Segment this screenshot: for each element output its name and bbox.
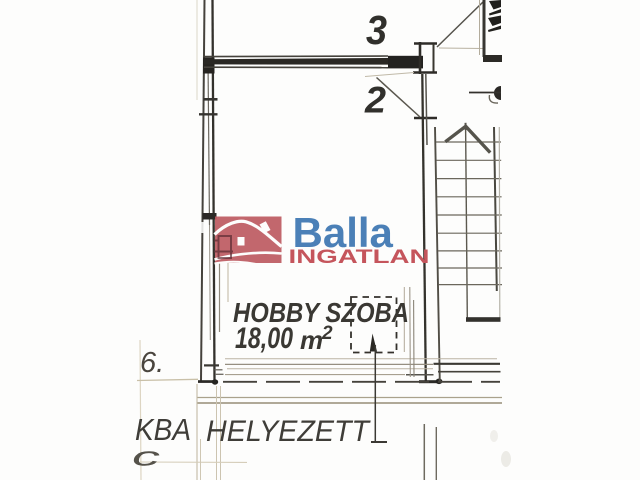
svg-text:m: m <box>300 325 323 355</box>
svg-text:HELYEZETT: HELYEZETT <box>206 415 372 448</box>
svg-text:3: 3 <box>366 7 387 53</box>
svg-text:6.: 6. <box>140 347 164 379</box>
svg-text:c: c <box>132 442 160 472</box>
svg-text:2: 2 <box>364 80 386 121</box>
svg-text:2: 2 <box>321 323 333 344</box>
svg-text:INGATLAN: INGATLAN <box>289 247 430 268</box>
svg-text:18,00: 18,00 <box>235 322 293 355</box>
